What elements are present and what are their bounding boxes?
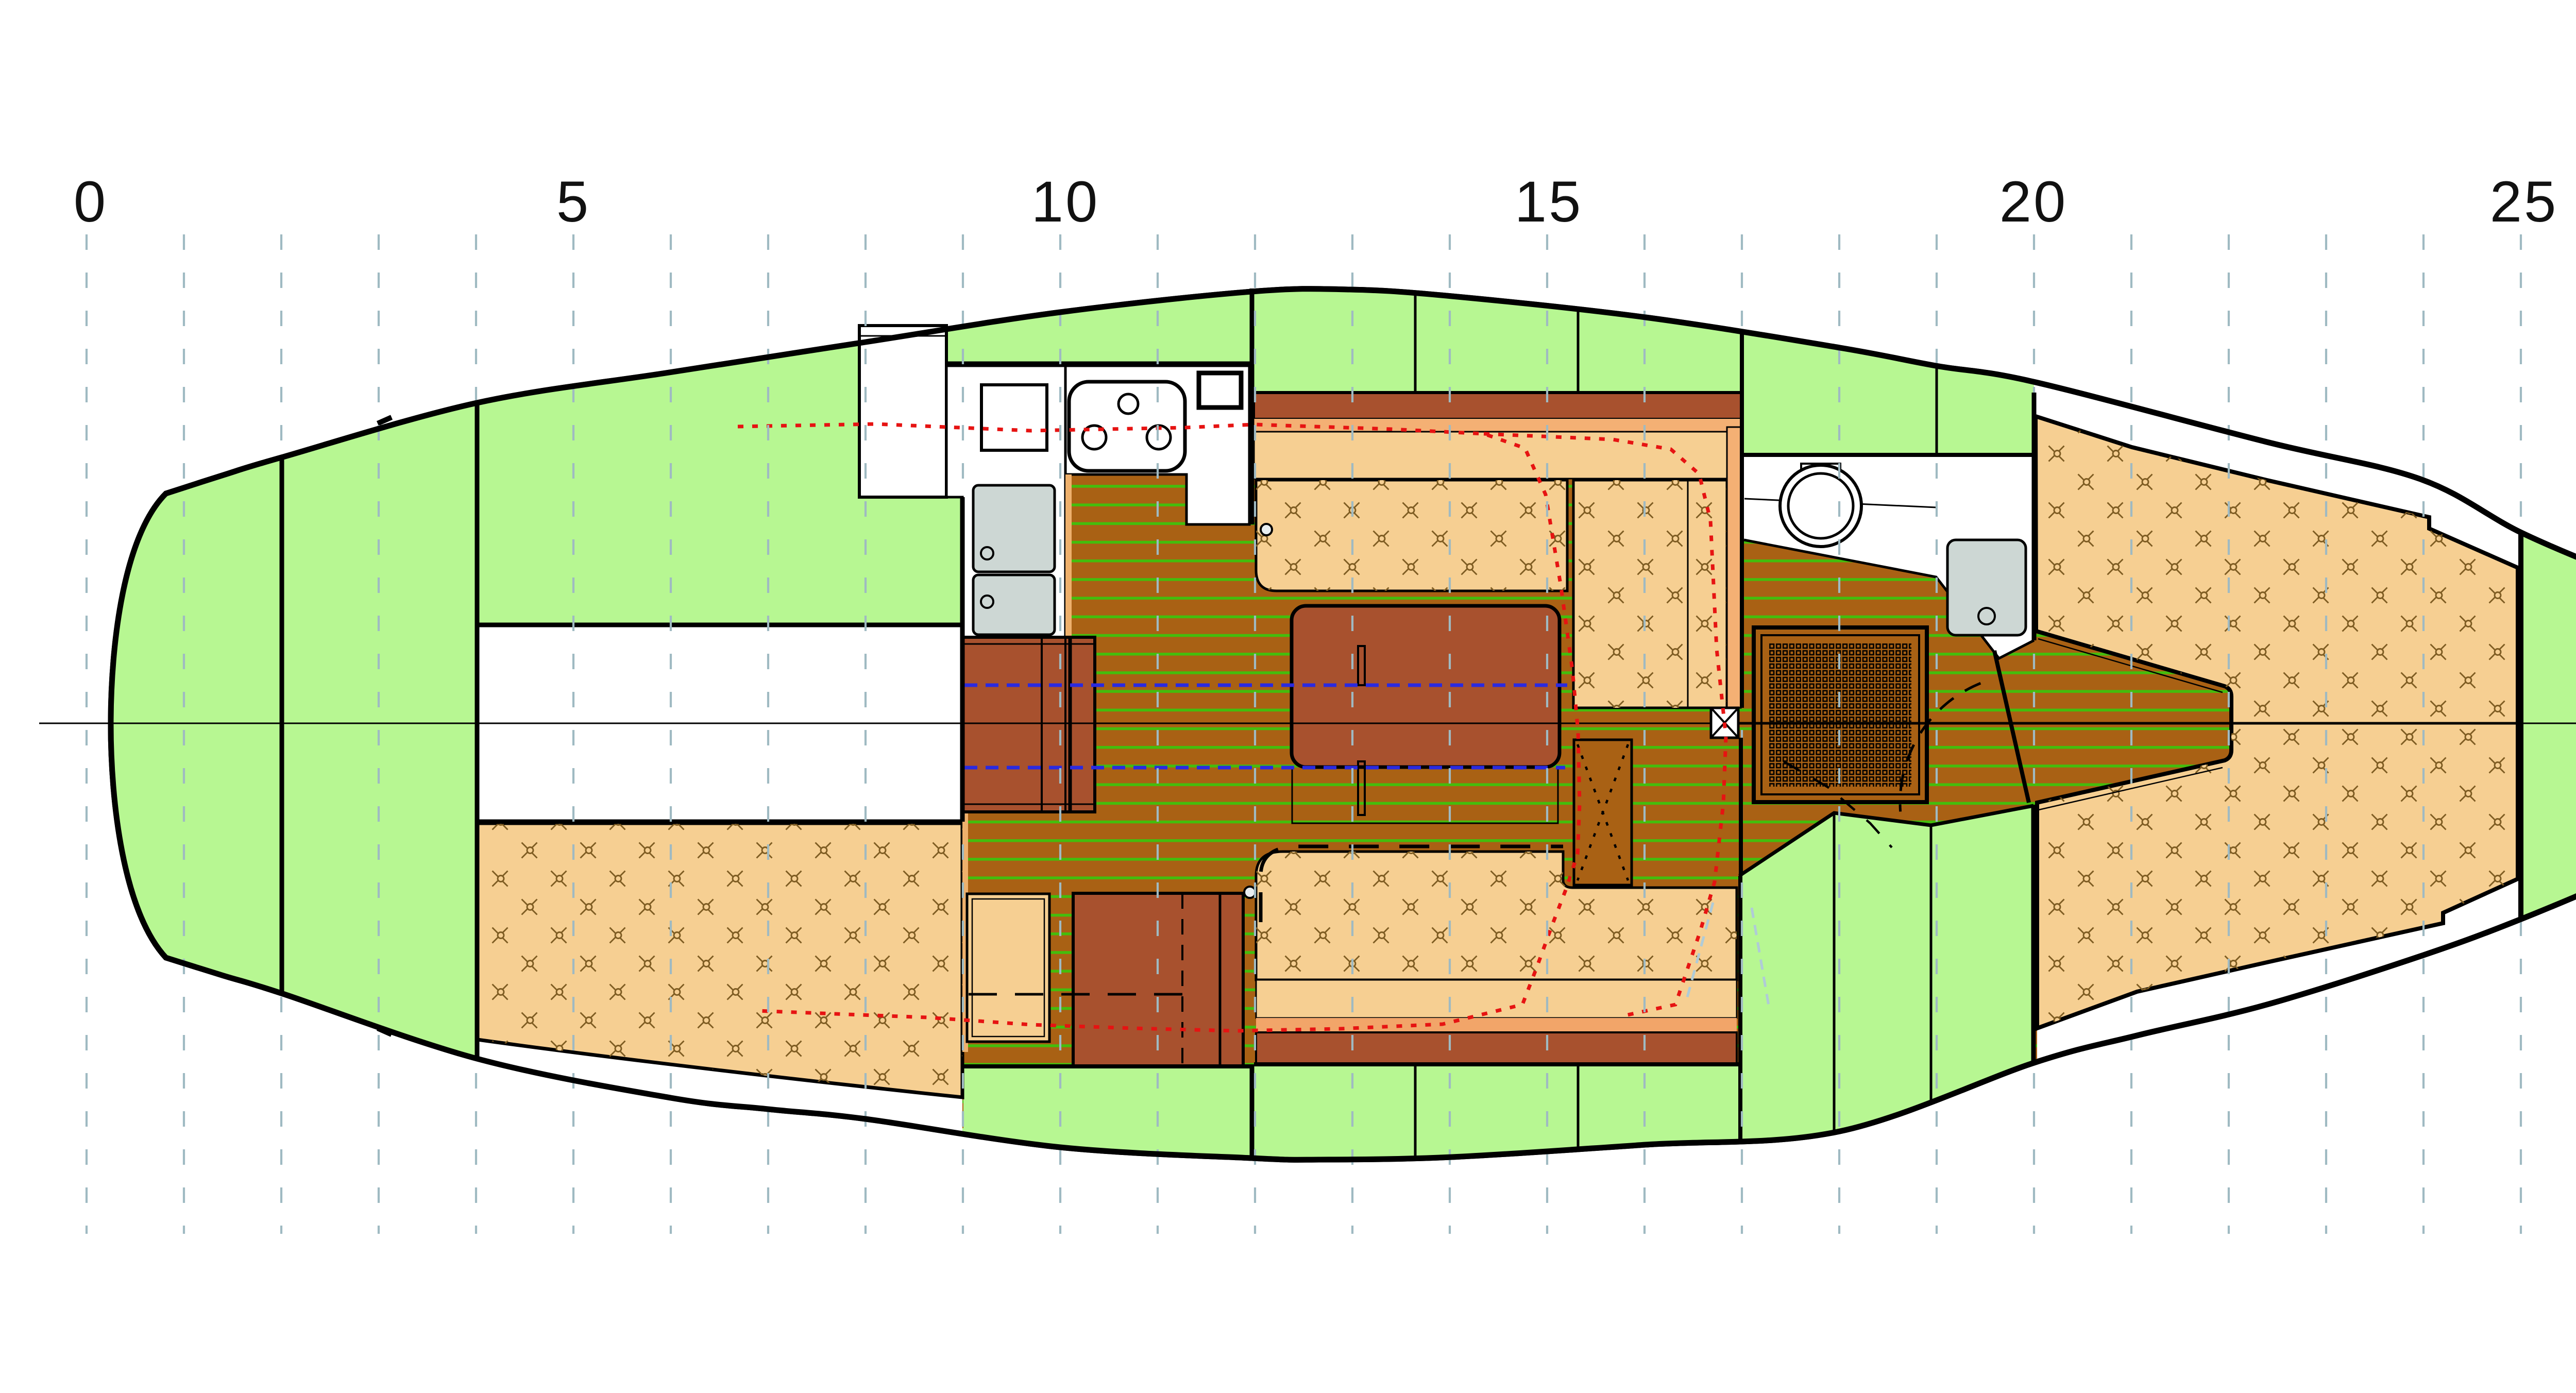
svg-text:0: 0 — [74, 169, 108, 234]
svg-text:25: 25 — [2490, 169, 2558, 234]
svg-text:5: 5 — [556, 169, 590, 234]
svg-text:10: 10 — [1031, 169, 1100, 234]
svg-text:15: 15 — [1515, 169, 1583, 234]
svg-text:20: 20 — [1999, 169, 2068, 234]
